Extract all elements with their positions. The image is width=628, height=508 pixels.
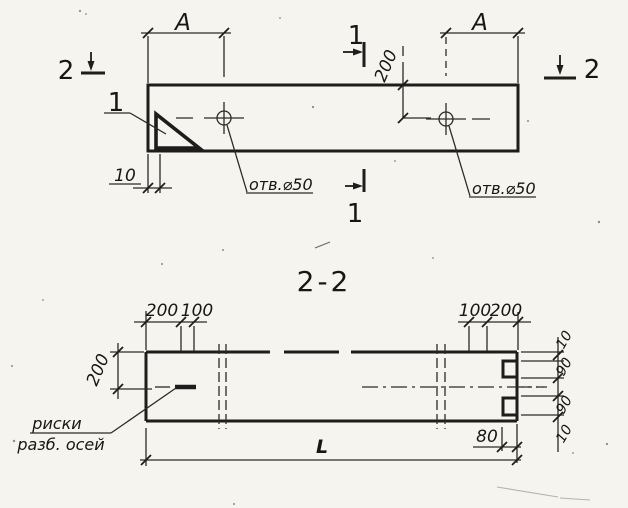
hole-callout-right: отв.⌀50 xyxy=(449,126,536,198)
section-2-right-label: 2 xyxy=(584,55,601,85)
dim-right-10-bottom: 10 xyxy=(553,422,576,446)
corner-detail-triangle xyxy=(156,114,199,148)
hole-right xyxy=(426,103,466,135)
section-mark-1-top: 1 xyxy=(343,21,364,67)
hole-note-left: отв.⌀50 xyxy=(249,175,313,194)
section-1-bottom-label: 1 xyxy=(347,199,364,229)
dim-80-label: 80 xyxy=(476,427,498,447)
dim-10-plan: 10 xyxy=(109,154,172,193)
dim-top-right-200: 200 xyxy=(490,301,522,321)
dim-80: 80 xyxy=(473,424,521,463)
drawing-sheet: А А 200 10 отв.⌀50 xyxy=(0,0,628,508)
section-mark-2-right: 2 xyxy=(544,55,600,85)
section-2-left-label: 2 xyxy=(58,56,75,86)
dim-a-right: А xyxy=(440,10,525,83)
dim-a-left-label: А xyxy=(173,10,191,36)
dimension-ticks xyxy=(113,28,563,465)
notches xyxy=(503,361,517,415)
break-lines xyxy=(219,344,445,429)
section-mark-1-bottom: 1 xyxy=(345,169,364,229)
section-title: 2-2 xyxy=(297,265,352,298)
axis-note-line1: риски xyxy=(31,414,81,433)
dim-a-right-label: А xyxy=(470,10,488,36)
hole-note-right: отв.⌀50 xyxy=(472,179,536,198)
section-mark-2-left: 2 xyxy=(58,52,105,86)
dim-top-right-100: 100 xyxy=(459,301,491,321)
dims-right-side: 10 90 90 10 xyxy=(521,328,576,452)
section-1-top-label: 1 xyxy=(348,21,365,51)
technical-drawing-canvas: А А 200 10 отв.⌀50 xyxy=(0,0,628,508)
dim-200-plan-label: 200 xyxy=(371,47,402,85)
section-view: 2-2 xyxy=(16,265,576,466)
dim-200-plan: 200 xyxy=(371,46,403,118)
dim-height-label: 200 xyxy=(83,351,114,389)
dim-a-left: А xyxy=(141,10,231,83)
dim-length: L xyxy=(140,428,521,466)
hole-callout-left: отв.⌀50 xyxy=(227,125,313,194)
plan-view: А А 200 10 отв.⌀50 xyxy=(58,10,601,229)
dims-top-left: 200 100 xyxy=(134,301,213,351)
dim-right-10-top: 10 xyxy=(553,328,576,352)
axis-note-line2: разб. осей xyxy=(16,435,104,454)
dims-top-right: 100 200 xyxy=(458,301,531,351)
dim-length-label: L xyxy=(316,436,328,458)
hole-left xyxy=(204,102,244,134)
dim-10-label: 10 xyxy=(114,166,136,186)
dim-right-90-top: 90 xyxy=(553,355,576,379)
plan-beam-outline xyxy=(148,85,518,151)
